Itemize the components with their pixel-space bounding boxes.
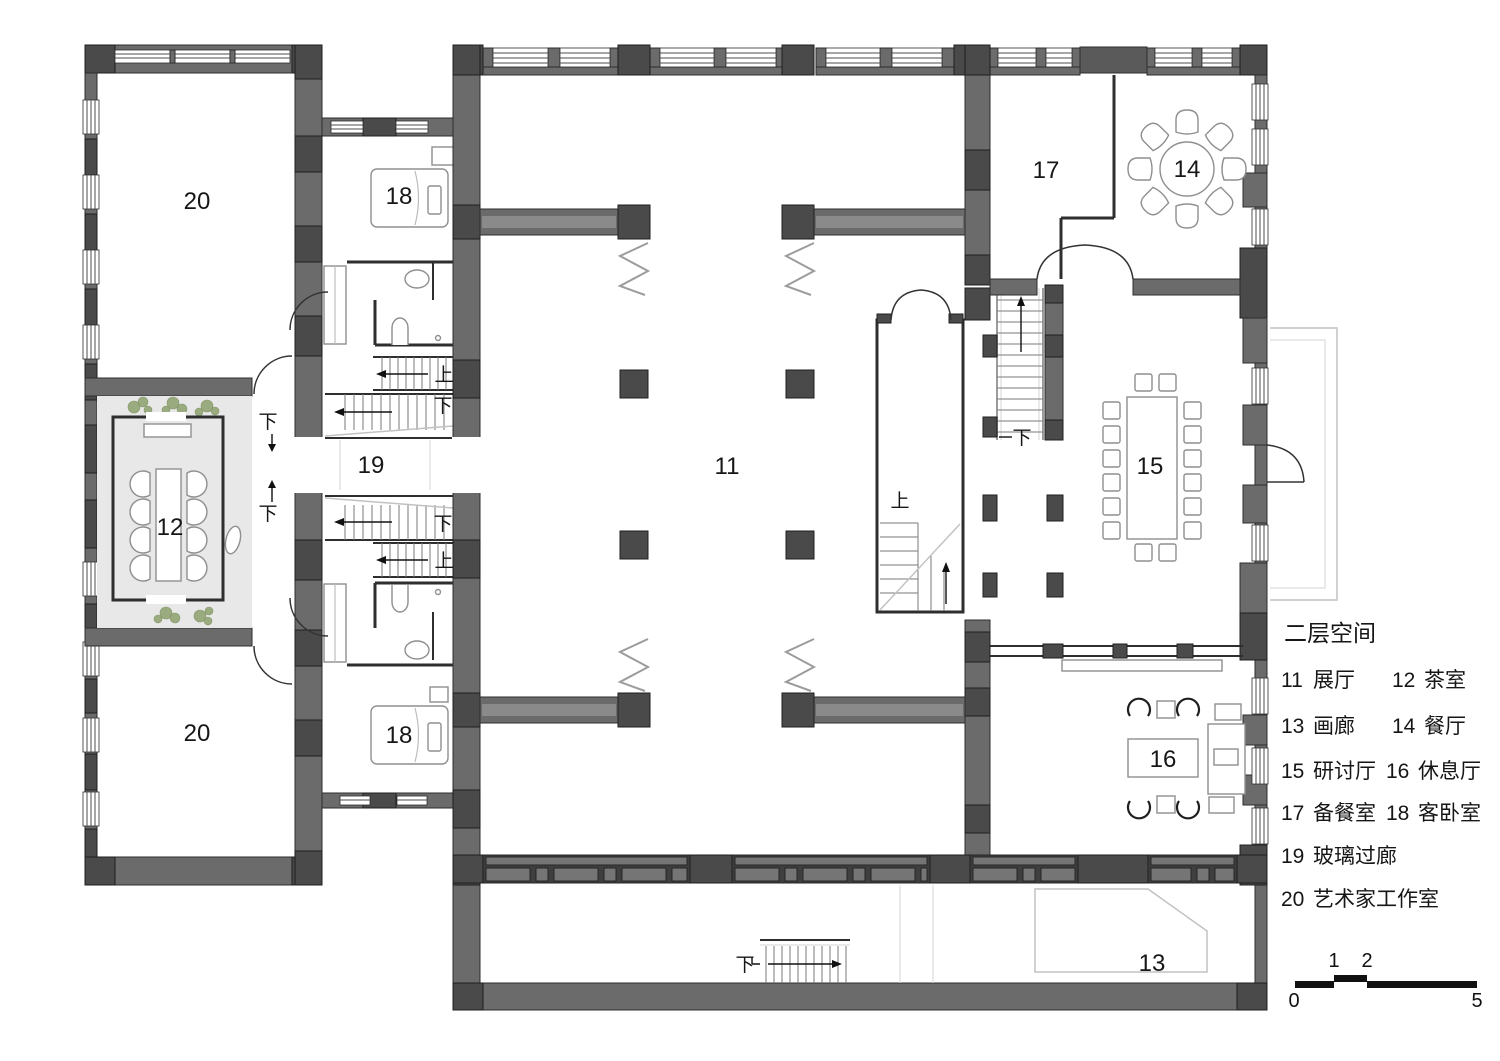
bench xyxy=(1062,660,1222,671)
nightstand xyxy=(432,147,456,165)
toilet xyxy=(392,318,408,345)
svg-text:下: 下 xyxy=(258,412,277,433)
room-label-lounge: 16 xyxy=(1150,746,1177,773)
floor-plan-drawing: 20 20 12 xyxy=(0,0,1500,1061)
scale-tick-5: 5 xyxy=(1471,990,1482,1012)
scale-tick-2: 2 xyxy=(1361,950,1372,972)
svg-text:上: 上 xyxy=(434,550,453,572)
room-label-studio-bottom: 20 xyxy=(184,720,211,747)
svg-text:餐厅: 餐厅 xyxy=(1424,715,1466,738)
floor-plan-page: 20 20 12 xyxy=(0,0,1500,1061)
sideboard xyxy=(144,424,191,437)
svg-text:13: 13 xyxy=(1281,715,1304,738)
svg-text:20: 20 xyxy=(1281,888,1304,911)
svg-text:上: 上 xyxy=(890,490,909,512)
north-facade xyxy=(455,45,1267,75)
svg-text:下: 下 xyxy=(433,396,452,417)
svg-text:15: 15 xyxy=(1281,760,1304,783)
room-label-tea: 12 xyxy=(157,514,184,541)
nightstand xyxy=(430,687,448,702)
seminar-hall: 15 xyxy=(1103,374,1201,561)
south-exterior-wall xyxy=(453,983,1267,1010)
svg-text:休息厅: 休息厅 xyxy=(1418,760,1481,783)
scale-tick-0: 0 xyxy=(1288,990,1299,1012)
svg-text:17: 17 xyxy=(1281,802,1304,825)
svg-text:下: 下 xyxy=(735,955,754,976)
svg-text:艺术家工作室: 艺术家工作室 xyxy=(1313,888,1439,911)
toilet xyxy=(392,585,408,612)
svg-text:14: 14 xyxy=(1392,715,1416,738)
sink xyxy=(405,641,429,659)
svg-text:画廊: 画廊 xyxy=(1313,715,1355,738)
room-label-glass-corridor: 19 xyxy=(358,452,385,479)
svg-text:备餐室: 备餐室 xyxy=(1313,802,1376,825)
svg-text:上: 上 xyxy=(434,364,453,386)
svg-text:下: 下 xyxy=(433,514,452,535)
room-label-guest-top: 18 xyxy=(386,183,413,210)
legend-title: 二层空间 xyxy=(1284,620,1376,646)
svg-text:茶室: 茶室 xyxy=(1424,669,1466,692)
svg-text:18: 18 xyxy=(1386,802,1409,825)
svg-text:12: 12 xyxy=(1392,669,1415,692)
svg-text:11: 11 xyxy=(1281,669,1303,692)
svg-text:玻璃过廊: 玻璃过廊 xyxy=(1313,845,1397,868)
dining-room: 14 xyxy=(1128,110,1246,228)
room-label-dining: 14 xyxy=(1174,156,1201,183)
courtyard: 12 下 下 xyxy=(97,396,278,628)
room-label-pantry: 17 xyxy=(1033,157,1060,184)
room-label-hall: 11 xyxy=(715,453,740,480)
svg-text:研讨厅: 研讨厅 xyxy=(1313,760,1376,783)
svg-text:16: 16 xyxy=(1386,760,1409,783)
svg-text:下: 下 xyxy=(258,504,277,525)
room-label-gallery: 13 xyxy=(1139,950,1166,977)
legend-row-5: 19 玻璃过廊 xyxy=(1281,845,1397,868)
svg-text:下: 下 xyxy=(1012,428,1031,449)
svg-text:19: 19 xyxy=(1281,845,1304,868)
gallery-panel-wall xyxy=(453,855,1267,883)
room-label-studio-top: 20 xyxy=(184,188,211,215)
room-label-guest-bottom: 18 xyxy=(386,722,413,749)
scale-tick-1: 1 xyxy=(1328,950,1339,972)
room-label-seminar: 15 xyxy=(1137,453,1164,480)
svg-text:客卧室: 客卧室 xyxy=(1418,802,1481,825)
sink xyxy=(405,270,429,288)
svg-text:展厅: 展厅 xyxy=(1313,669,1355,692)
